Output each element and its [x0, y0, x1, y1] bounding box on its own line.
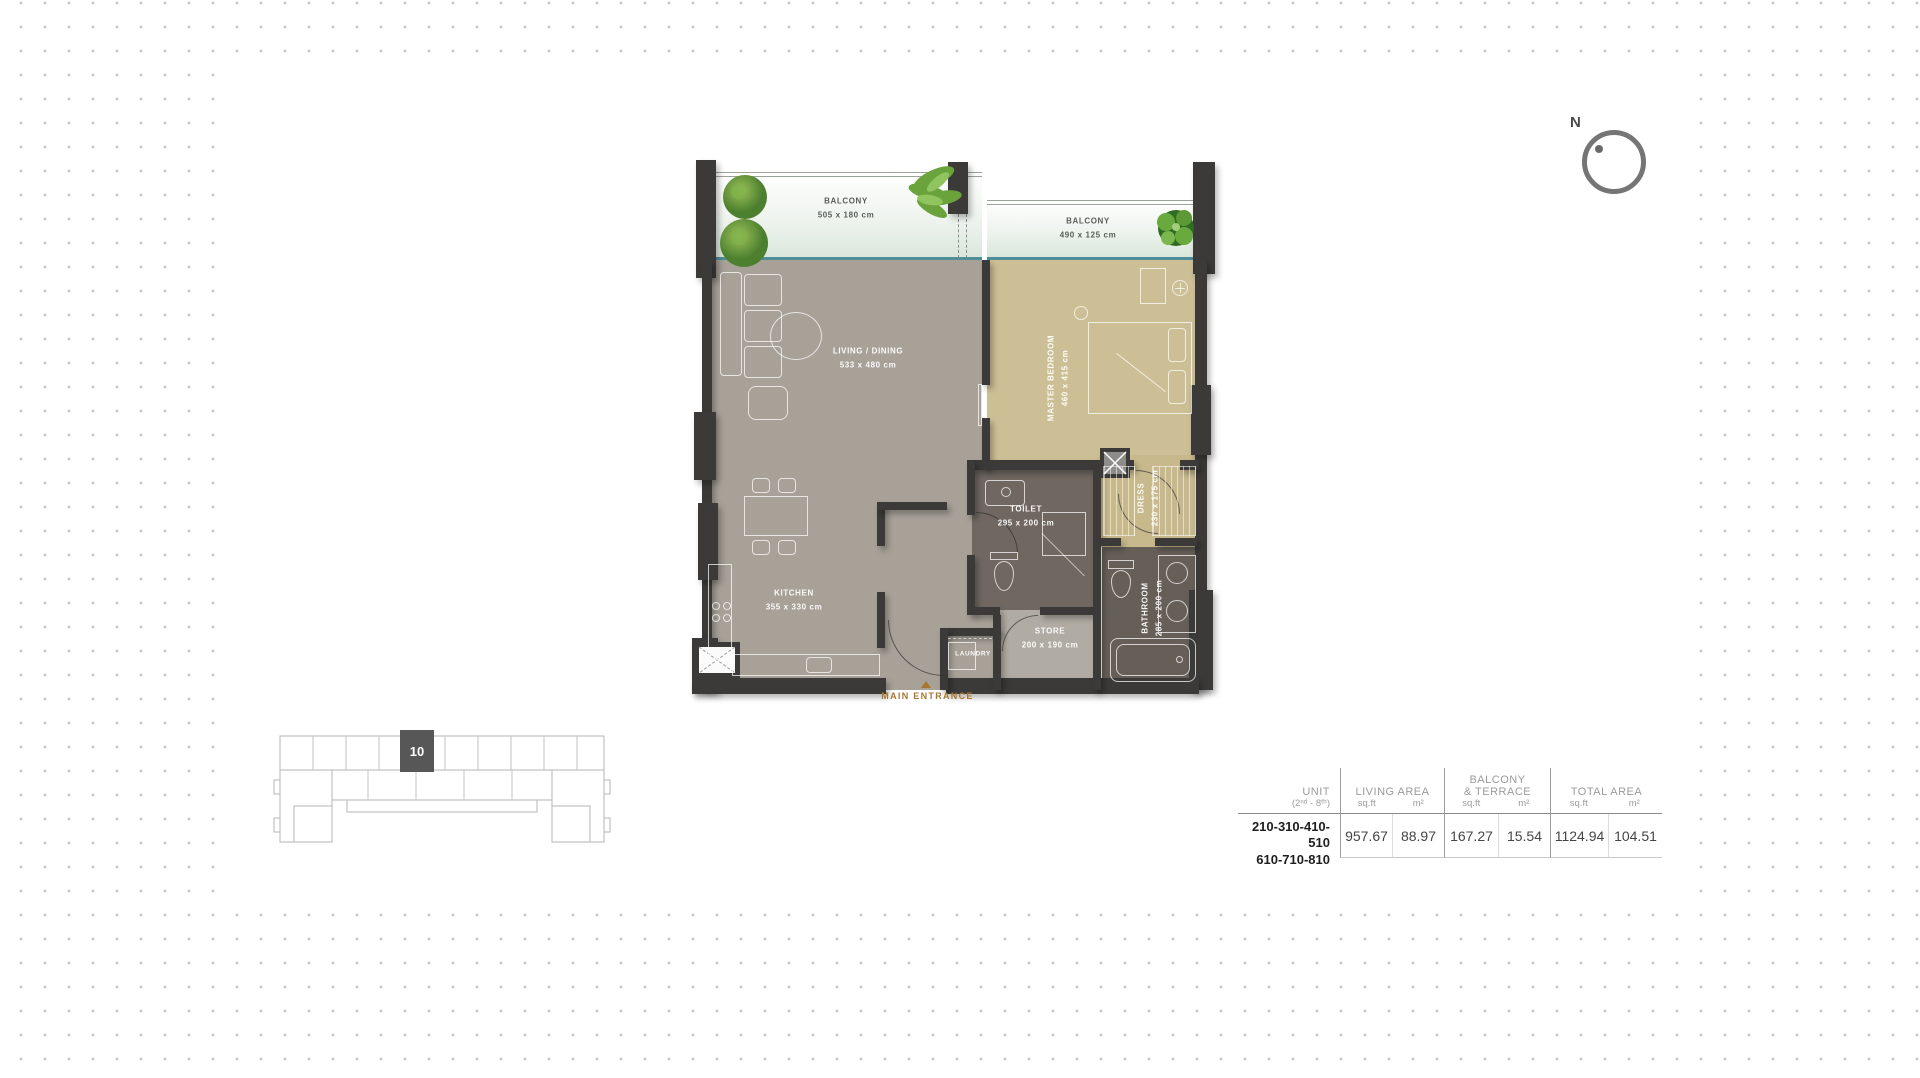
stove-burner — [723, 614, 731, 622]
compass-ring-icon — [1582, 130, 1646, 194]
living-area-title: LIVING AREA — [1341, 786, 1444, 798]
dresser — [1140, 268, 1166, 304]
kitchen-sink — [806, 657, 832, 673]
balcony2-dims: 490 x 125 cm — [1060, 228, 1117, 242]
table-header-total-area: TOTAL AREA sq.ft m² — [1550, 768, 1662, 814]
sink-basin — [1166, 600, 1188, 622]
living-m2-label: m² — [1393, 798, 1445, 809]
dress-label: DRESS 230 x 175 cm — [1134, 470, 1161, 527]
ceiling-light-cross — [1180, 283, 1181, 293]
store-name: STORE — [1022, 624, 1079, 638]
coffee-table — [770, 312, 822, 360]
fern-plant-icon — [902, 160, 966, 222]
balcony-m2-label: m² — [1498, 798, 1551, 809]
sink-basin — [1166, 562, 1188, 584]
store-dims: 200 x 190 cm — [1022, 638, 1079, 652]
wc-tank — [1108, 560, 1134, 569]
area-table: UNIT (2ⁿᵈ - 8ᵗʰ) LIVING AREA sq.ft m² BA… — [1238, 768, 1662, 858]
main-entrance-label: MAIN ENTRANCE — [855, 691, 1000, 701]
wall — [1191, 385, 1211, 455]
dining-chair — [752, 478, 770, 493]
dress-name: DRESS — [1134, 470, 1148, 527]
laundry-label: LAUNDRY — [955, 648, 991, 659]
dining-chair — [752, 540, 770, 555]
wall — [967, 555, 975, 615]
dining-chair — [778, 478, 796, 493]
store-label: STORE 200 x 190 cm — [1022, 624, 1079, 651]
balcony-divider-dash — [966, 214, 967, 258]
key-plan-unit-highlight: 10 — [400, 730, 434, 772]
balcony1-name: BALCONY — [818, 194, 875, 208]
cell-total-sqft: 1124.94 — [1550, 814, 1608, 858]
unit-numbers-line1: 210-310-410-510 — [1238, 819, 1330, 852]
wc-tank — [990, 552, 1018, 560]
sofa-seat — [744, 274, 782, 306]
dress-dims: 230 x 175 cm — [1148, 470, 1162, 527]
balcony-sqft-label: sq.ft — [1445, 798, 1498, 809]
table-header-balcony-terrace: BALCONY & TERRACE sq.ft m² — [1444, 768, 1550, 814]
compass-dot-icon — [1595, 145, 1603, 153]
living-name: LIVING / DINING — [833, 344, 903, 358]
armchair — [748, 386, 788, 420]
wall — [877, 592, 885, 648]
table-row-unit-numbers: 210-310-410-510 610-710-810 — [1238, 814, 1340, 858]
pillow — [1168, 370, 1186, 404]
living-dims: 533 x 480 cm — [833, 358, 903, 372]
balcony1-dims: 505 x 180 cm — [818, 208, 875, 222]
total-area-title: TOTAL AREA — [1551, 786, 1662, 798]
stool — [1074, 306, 1088, 320]
table-header-living-area: LIVING AREA sq.ft m² — [1340, 768, 1444, 814]
entrance-arrow-icon — [921, 681, 931, 688]
wall — [694, 412, 716, 480]
ivy-plant-icon — [1150, 202, 1200, 252]
balcony-title-line2: & TERRACE — [1445, 786, 1550, 798]
bathroom-name: BATHROOM — [1138, 580, 1152, 637]
cell-living-sqft: 957.67 — [1340, 814, 1392, 858]
tv-console — [978, 384, 982, 426]
balcony2-label: BALCONY 490 x 125 cm — [1060, 214, 1117, 241]
key-plan-outline — [272, 726, 612, 850]
toilet-label: TOILET 295 x 200 cm — [998, 502, 1055, 529]
total-m2-label: m² — [1607, 798, 1663, 809]
wall — [1101, 538, 1121, 546]
stove-burner — [723, 602, 731, 610]
toilet-name: TOILET — [998, 502, 1055, 516]
wall — [993, 615, 1001, 690]
pillow — [1168, 328, 1186, 362]
unit-header-line1: UNIT — [1238, 786, 1330, 798]
bathroom-dims: 285 x 200 cm — [1152, 580, 1166, 637]
wall — [982, 260, 990, 385]
wall — [967, 460, 975, 515]
cell-living-m2: 88.97 — [1392, 814, 1444, 858]
balcony2-name: BALCONY — [1060, 214, 1117, 228]
toilet-dims: 295 x 200 cm — [998, 516, 1055, 530]
kitchen-name: KITCHEN — [766, 586, 823, 600]
table-header-unit: UNIT (2ⁿᵈ - 8ᵗʰ) — [1238, 768, 1340, 814]
wardrobe-hatch — [1103, 466, 1135, 536]
wall — [1093, 460, 1101, 690]
bedroom-dims: 460 x 415 cm — [1058, 335, 1072, 421]
compass: N — [1582, 130, 1646, 194]
bedroom-name: MASTER BEDROOM — [1044, 335, 1058, 421]
unit-numbers-line2: 610-710-810 — [1238, 852, 1330, 868]
sofa-back — [720, 272, 742, 376]
wall — [877, 502, 947, 510]
bedroom-label: MASTER BEDROOM 460 x 415 cm — [1044, 335, 1071, 421]
unit-header-line2: (2ⁿᵈ - 8ᵗʰ) — [1238, 798, 1330, 809]
living-sqft-label: sq.ft — [1341, 798, 1393, 809]
wall — [940, 628, 1000, 636]
wall — [1040, 607, 1093, 615]
dining-table — [744, 496, 808, 536]
wall — [972, 607, 1000, 615]
dining-chair — [778, 540, 796, 555]
kitchen-label: KITCHEN 355 x 330 cm — [766, 586, 823, 613]
living-label: LIVING / DINING 533 x 480 cm — [833, 344, 903, 371]
total-sqft-label: sq.ft — [1551, 798, 1607, 809]
page-background: BALCONY 505 x 180 cm BALCONY 490 x 125 c… — [0, 0, 1920, 1078]
cell-balcony-sqft: 167.27 — [1444, 814, 1498, 858]
stove-burner — [712, 602, 720, 610]
balcony1-label: BALCONY 505 x 180 cm — [818, 194, 875, 221]
cell-balcony-m2: 15.54 — [1498, 814, 1550, 858]
plant-icon — [720, 174, 772, 270]
wall — [1155, 538, 1197, 546]
bathroom-label: BATHROOM 285 x 200 cm — [1138, 580, 1165, 637]
kitchen-counter — [708, 564, 732, 660]
balcony-title-line1: BALCONY — [1445, 774, 1550, 786]
toilet-sink-tap — [1001, 487, 1011, 497]
cell-total-m2: 104.51 — [1608, 814, 1662, 858]
compass-north-label: N — [1570, 114, 1581, 131]
bathtub-drain — [1176, 656, 1183, 663]
laundry-opening-dash — [948, 638, 992, 639]
floor-plan: BALCONY 505 x 180 cm BALCONY 490 x 125 c… — [690, 160, 1225, 720]
kitchen-dims: 355 x 330 cm — [766, 600, 823, 614]
building-key-plan: 10 — [272, 726, 612, 850]
laundry-name: LAUNDRY — [955, 648, 991, 659]
stove-burner — [712, 614, 720, 622]
